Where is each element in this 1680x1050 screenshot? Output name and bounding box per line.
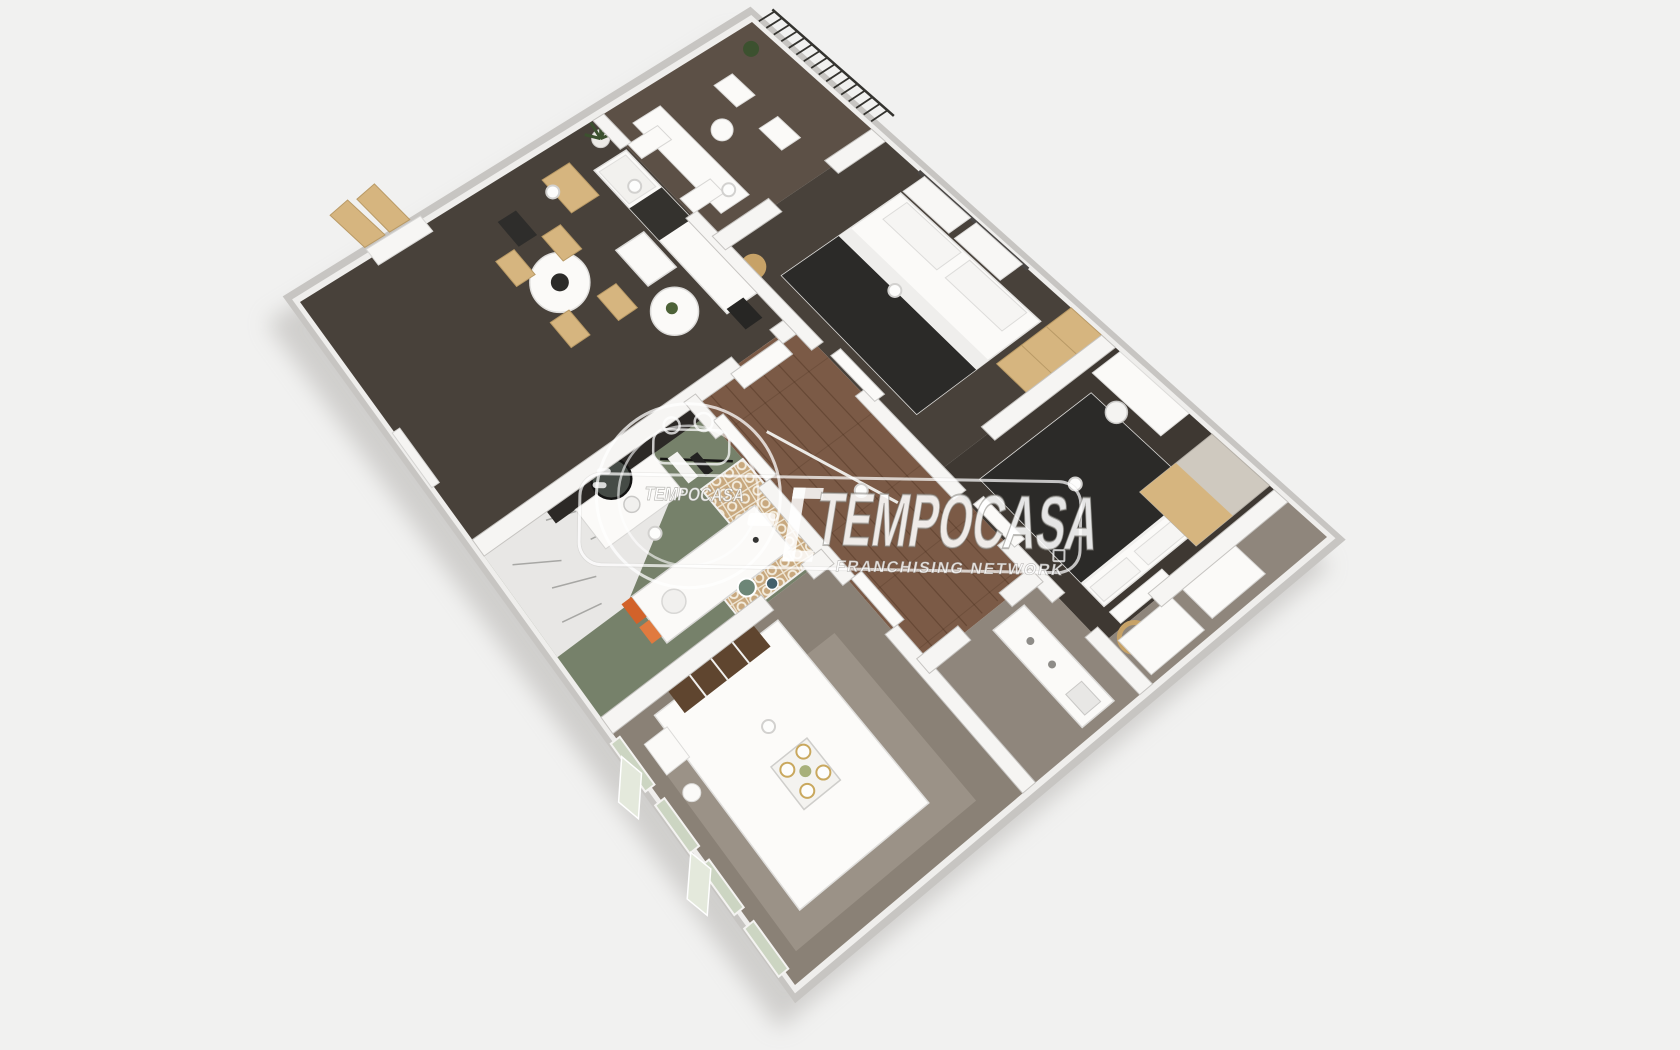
balcony-railing-baluster bbox=[864, 104, 880, 115]
tray-plate bbox=[800, 784, 814, 798]
dining-table-vase bbox=[551, 273, 569, 291]
balcony-railing-baluster bbox=[804, 51, 820, 61]
deco-plate-large bbox=[738, 578, 756, 596]
bathtub-basin bbox=[662, 589, 686, 613]
ceiling-light bbox=[888, 284, 901, 297]
bathroom-sink bbox=[624, 496, 640, 512]
ceiling-light bbox=[722, 183, 735, 196]
balcony-railing-baluster bbox=[849, 91, 865, 102]
balcony-table bbox=[711, 119, 733, 141]
balcony-railing-baluster bbox=[789, 38, 805, 48]
balcony-railing-baluster bbox=[826, 71, 842, 82]
balcony-plant bbox=[743, 41, 759, 57]
screenshot-stage: TEMPOCASA TEMPOCASA FRANCHISING NETWORK bbox=[0, 0, 1680, 1050]
tray-plate bbox=[816, 766, 830, 780]
hob-dot bbox=[1048, 660, 1056, 668]
ceiling-light bbox=[1069, 477, 1082, 490]
floor-plan-3d bbox=[0, 0, 1680, 1050]
bathtub-drain bbox=[753, 537, 759, 543]
balcony-railing-baluster bbox=[796, 44, 812, 54]
ceiling-light bbox=[762, 720, 775, 733]
bedroom-2-desk-chair bbox=[1105, 401, 1127, 423]
balcony-railing-baluster bbox=[834, 77, 850, 88]
balcony-railing-baluster bbox=[856, 97, 872, 108]
ceiling-light bbox=[546, 185, 559, 198]
hob-dot bbox=[1026, 637, 1034, 645]
deco-plate-small bbox=[766, 578, 778, 590]
ceiling-light bbox=[649, 527, 662, 540]
tray-plate bbox=[796, 745, 810, 759]
ceiling-light bbox=[855, 484, 868, 497]
coffee-table-plant bbox=[666, 302, 678, 314]
balcony-railing-baluster bbox=[841, 84, 857, 95]
tray-bowl bbox=[799, 765, 811, 777]
bedroom-3-side-table bbox=[683, 784, 701, 802]
balcony-railing-baluster bbox=[811, 58, 827, 68]
balcony-railing-baluster bbox=[871, 110, 887, 121]
ceiling-light bbox=[628, 180, 641, 193]
tray-plate bbox=[780, 763, 794, 777]
balcony-railing-baluster bbox=[781, 31, 797, 41]
balcony-railing-baluster bbox=[819, 64, 835, 74]
